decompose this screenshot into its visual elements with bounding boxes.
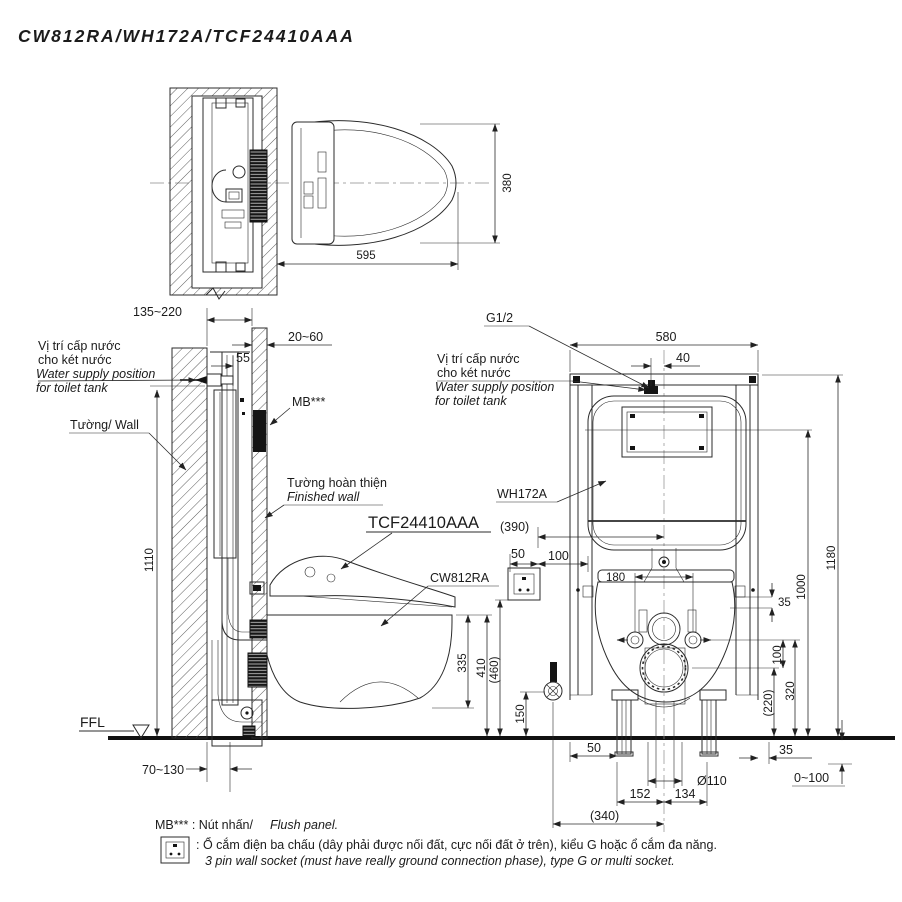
dim-390: (390) [500, 520, 529, 534]
side-toilet [267, 556, 455, 708]
dim-r100: 100 [772, 645, 784, 664]
top-view: 380 595 [150, 88, 514, 299]
plan-wall-sleeve [250, 150, 267, 222]
note-mb-vi: MB*** : Nút nhấn/ [155, 818, 253, 832]
dim-410: 410 [476, 658, 488, 677]
label-fws-vi-1: Vị trí cấp nước [437, 352, 520, 366]
plan-dim-380: 380 [420, 124, 514, 243]
dim-595: 595 [356, 250, 375, 262]
dim-1110: 1110 [144, 548, 156, 572]
note-socket-en: 3 pin wall socket (must have really grou… [205, 854, 675, 868]
ffl-datum: FFL [79, 714, 149, 738]
side-label-finished-wall: Tường hoàn thiện Finished wall [265, 476, 387, 518]
front-label-wh172a: WH172A [496, 481, 606, 502]
dim-b35: 35 [779, 743, 793, 757]
dim-r320: 320 [785, 681, 797, 700]
dim-340: (340) [590, 809, 619, 823]
front-bowl [595, 570, 800, 707]
front-view: G1/2 Vị trí cấp nước cho két nước Water … [435, 311, 852, 832]
label-ws-en-2: for toilet tank [36, 381, 108, 395]
dim-135-220: 135~220 [133, 305, 182, 319]
label-wall: Tường/ Wall [70, 418, 139, 432]
label-fw-en: Finished wall [287, 490, 360, 504]
dim-55: 55 [236, 351, 250, 365]
label-ws-vi-1: Vị trí cấp nước [38, 339, 121, 353]
dim-380: 380 [502, 173, 514, 192]
front-tank [585, 380, 812, 582]
label-fw-vi: Tường hoàn thiện [287, 476, 387, 490]
stop-valve-icon [544, 662, 562, 700]
dim-dia110: Ø110 [697, 774, 727, 788]
label-fws-en-1: Water supply position [435, 380, 554, 394]
dim-152: 152 [630, 787, 651, 801]
dim-r220: (220) [763, 689, 775, 716]
side-label-wall: Tường/ Wall [69, 418, 186, 470]
front-dims-right: 35 100 (220) 320 1000 1180 [730, 375, 843, 736]
side-label-mb: MB*** [270, 395, 325, 425]
dim-1180: 1180 [826, 546, 838, 571]
dim-40: 40 [676, 351, 690, 365]
label-cw812ra: CW812RA [430, 571, 490, 585]
label-ws-en-1: Water supply position [36, 367, 155, 381]
note-mb-en: Flush panel. [270, 818, 338, 832]
label-g12: G1/2 [486, 311, 513, 325]
front-label-water-supply: Vị trí cấp nước cho két nước Water suppl… [435, 352, 646, 408]
label-fws-en-2: for toilet tank [435, 394, 507, 408]
side-label-tcf: TCF24410AAA [341, 514, 491, 569]
dim-580: 580 [656, 330, 677, 344]
side-wall [172, 348, 207, 738]
drawing-title: CW812RA/WH172A/TCF24410AAA [18, 26, 355, 46]
label-ws-vi-2: cho két nước [38, 353, 112, 367]
label-tcf24410aaa: TCF24410AAA [368, 514, 479, 532]
label-wh172a: WH172A [497, 487, 548, 501]
dim-socket-50: 50 [511, 547, 525, 561]
dim-70-130: 70~130 [142, 763, 184, 777]
label-mb: MB*** [292, 395, 325, 409]
side-view: Vị trí cấp nước cho két nước Water suppl… [36, 305, 499, 792]
dim-socket-100: 100 [548, 549, 569, 563]
installation-diagram: CW812RA/WH172A/TCF24410AAA 380 [0, 0, 902, 902]
dim-1000: 1000 [796, 574, 808, 600]
dim-150: 150 [515, 704, 527, 723]
dim-335: 335 [457, 653, 469, 672]
dim-180: 180 [606, 572, 625, 584]
dim-460: (460) [489, 656, 501, 683]
label-fws-vi-2: cho két nước [437, 366, 511, 380]
socket-icon [508, 568, 540, 600]
front-dims-left: (390) 50 100 (460) 150 [489, 520, 664, 736]
side-flush-panel [253, 410, 266, 452]
dim-0-100: 0~100 [794, 771, 829, 785]
dim-134: 134 [675, 787, 696, 801]
note-socket-vi: : Ổ cắm điện ba chấu (dây phải được nối … [196, 837, 717, 852]
technical-drawing-page: CW812RA/WH172A/TCF24410AAA 380 [0, 0, 902, 902]
dim-b50: 50 [587, 741, 601, 755]
socket-legend-icon [161, 837, 189, 863]
dim-20-60: 20~60 [288, 330, 323, 344]
label-ffl: FFL [80, 714, 105, 730]
footer-notes: MB*** : Nút nhấn/ Flush panel. : Ổ cắm đ… [155, 818, 717, 868]
dim-r35: 35 [778, 597, 791, 609]
